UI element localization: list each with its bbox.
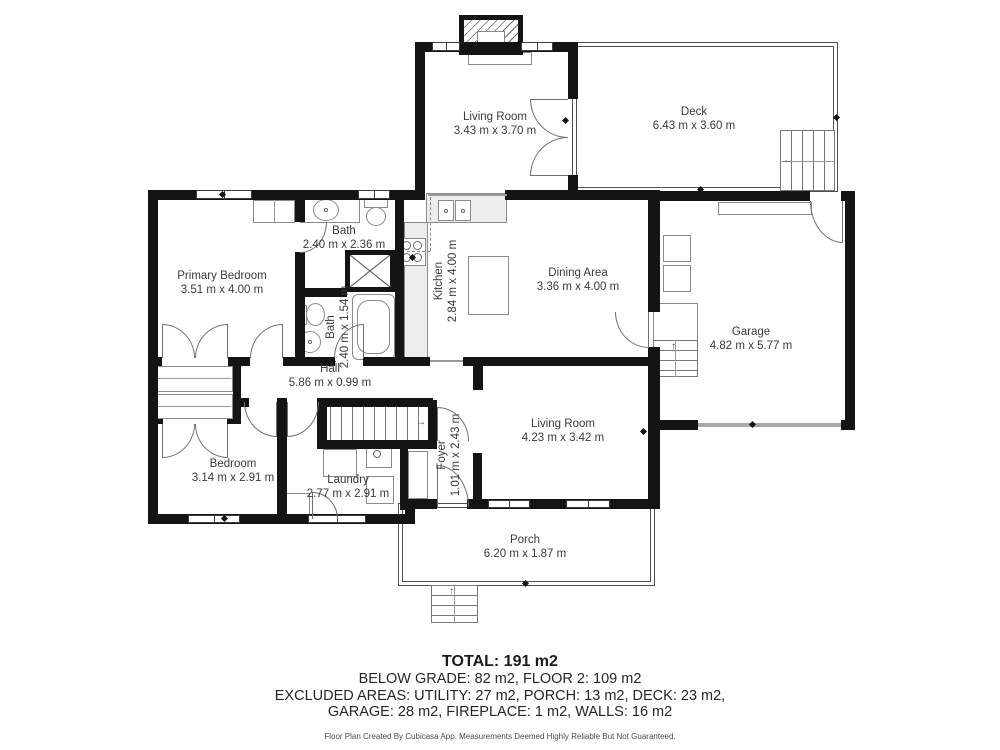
wall	[317, 440, 437, 449]
room-dims: 3.36 m x 4.00 m	[537, 280, 619, 294]
room-label-porch: Porch 6.20 m x 1.87 m	[484, 533, 566, 561]
room-dims: 2.40 m x 2.36 m	[303, 238, 385, 252]
window	[188, 515, 240, 523]
door-arc	[195, 424, 228, 458]
porch-stairs-centerline	[454, 585, 455, 623]
window	[521, 42, 553, 51]
kitchen-island	[468, 256, 509, 315]
stairs-arrow-icon: ←	[783, 156, 793, 166]
stairs-arrow-icon: ↑	[449, 587, 454, 597]
room-name: Kitchen	[432, 240, 446, 322]
door-arc	[250, 324, 283, 358]
room-name: Living Room	[454, 110, 536, 124]
wall	[148, 357, 162, 366]
garage-door	[698, 421, 841, 429]
wall	[841, 420, 855, 430]
window	[432, 42, 460, 51]
room-name: Dining Area	[537, 266, 619, 280]
room-name: Bath	[324, 286, 338, 368]
room-label-dining-area: Dining Area 3.36 m x 4.00 m	[537, 266, 619, 294]
wall	[568, 42, 578, 99]
room-dims: 2.77 m x 2.91 m	[307, 487, 389, 501]
room-label-bedroom: Bedroom 3.14 m x 2.91 m	[192, 457, 274, 485]
wall	[228, 357, 250, 366]
door-arc	[162, 324, 195, 358]
room-dims: 2.84 m x 4.00 m	[446, 240, 460, 322]
room-label-garage: Garage 4.82 m x 5.77 m	[710, 325, 792, 353]
room-label-bath-upper: Bath 2.40 m x 2.36 m	[303, 224, 385, 252]
sink-drain	[308, 340, 312, 344]
room-dims: 5.86 m x 0.99 m	[289, 376, 371, 390]
room-name: Porch	[484, 533, 566, 547]
closet-rod	[158, 378, 231, 379]
wall	[415, 499, 437, 509]
window	[566, 500, 610, 508]
room-label-foyer: Foyer 1.01 m x 2.43 m	[435, 414, 463, 496]
cased-opening	[428, 194, 507, 196]
sink-drain	[324, 208, 328, 212]
door-arc	[195, 324, 228, 358]
wall	[660, 191, 810, 201]
stairs-arrow-icon: →	[416, 418, 426, 428]
room-dims: 3.43 m x 3.70 m	[454, 124, 536, 138]
room-name: Bath	[303, 224, 385, 238]
room-name: Foyer	[435, 414, 449, 496]
door-arc	[615, 312, 649, 348]
cased-opening	[430, 360, 463, 362]
wall	[295, 252, 305, 366]
disclaimer-note: Floor Plan Created By Cubicasa App. Meas…	[0, 732, 1000, 741]
stove-burner	[413, 241, 422, 250]
room-name: Bedroom	[192, 457, 274, 471]
door-arc	[810, 201, 843, 243]
wall	[395, 190, 404, 366]
basement-stairs	[320, 407, 428, 440]
room-dims: 4.23 m x 3.42 m	[522, 431, 604, 445]
closet	[156, 366, 233, 392]
sink-drain	[461, 209, 465, 213]
excluded-areas-line1: EXCLUDED AREAS: UTILITY: 27 m2, PORCH: 1…	[0, 688, 1000, 705]
upper-cabinet-dashed-line	[430, 197, 431, 251]
sink-drain	[444, 209, 448, 213]
wall	[660, 420, 698, 430]
room-name: Primary Bedroom	[177, 269, 266, 283]
foyer-closet	[408, 451, 428, 499]
wall	[317, 398, 433, 407]
room-label-kitchen: Kitchen 2.84 m x 4.00 m	[432, 240, 460, 322]
room-name: Living Room	[522, 417, 604, 431]
grade-areas: BELOW GRADE: 82 m2, FLOOR 2: 109 m2	[0, 671, 1000, 688]
appliance	[663, 265, 691, 292]
room-dims: 4.82 m x 5.77 m	[710, 339, 792, 353]
closet-rod	[158, 406, 231, 407]
room-name: Garage	[710, 325, 792, 339]
room-dims: 3.14 m x 2.91 m	[192, 471, 274, 485]
room-dims: 6.20 m x 1.87 m	[484, 547, 566, 561]
appliance	[663, 235, 691, 262]
room-name: Laundry	[307, 473, 389, 487]
wall	[295, 190, 305, 222]
room-dims: 3.51 m x 4.00 m	[177, 283, 266, 297]
wall	[400, 448, 408, 510]
window	[488, 500, 530, 508]
room-label-deck: Deck 6.43 m x 3.60 m	[653, 105, 735, 133]
shower	[345, 250, 395, 292]
room-label-laundry: Laundry 2.77 m x 2.91 m	[307, 473, 389, 501]
window	[358, 190, 390, 199]
wall	[227, 419, 241, 424]
wall	[415, 42, 425, 192]
room-name: Hall	[289, 362, 371, 376]
wall	[648, 190, 660, 312]
room-dims: 2.40 m x 1.54 m	[338, 286, 352, 368]
wall	[277, 398, 287, 524]
wall	[233, 366, 241, 424]
upper-cabinet-dashed-line	[407, 251, 430, 252]
room-label-primary-bedroom: Primary Bedroom 3.51 m x 4.00 m	[177, 269, 266, 297]
wall	[648, 347, 660, 509]
cabinet-divider	[274, 200, 275, 223]
wall	[473, 453, 482, 500]
room-dims: 6.43 m x 3.60 m	[653, 119, 735, 133]
door-arc	[287, 402, 319, 437]
room-label-living-room-lower: Living Room 4.23 m x 3.42 m	[522, 417, 604, 445]
stairs-arrow-icon: ↑	[671, 342, 676, 352]
room-label-hall: Hall 5.86 m x 0.99 m	[289, 362, 371, 390]
room-name: Deck	[653, 105, 735, 119]
door-arc	[244, 402, 277, 437]
wall	[505, 190, 660, 200]
wall	[473, 366, 483, 390]
floor-plan: ← ↑ →	[0, 0, 1000, 750]
room-label-bath-lower: Bath 2.40 m x 1.54 m	[324, 286, 352, 368]
garage-counter	[718, 202, 812, 215]
excluded-areas-line2: GARAGE: 28 m2, FIREPLACE: 1 m2, WALLS: 1…	[0, 704, 1000, 721]
faucet	[373, 450, 381, 458]
toilet-bowl	[306, 303, 325, 326]
area-summary: TOTAL: 191 m2 BELOW GRADE: 82 m2, FLOOR …	[0, 652, 1000, 741]
door-arc	[162, 424, 195, 458]
door-arc	[530, 137, 568, 176]
room-label-living-room-upper: Living Room 3.43 m x 3.70 m	[454, 110, 536, 138]
wall	[363, 357, 430, 366]
room-dims: 1.01 m x 2.43 m	[449, 414, 463, 496]
total-area: TOTAL: 191 m2	[0, 652, 1000, 671]
wall	[463, 357, 650, 366]
dimension-tick	[640, 428, 647, 435]
